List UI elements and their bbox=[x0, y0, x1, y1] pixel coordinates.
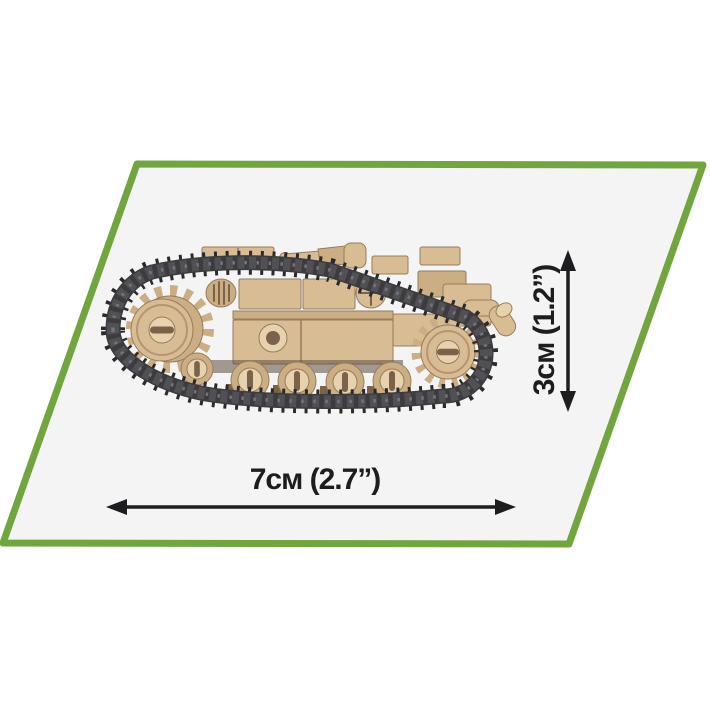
height-dimension-label: 3см (1.2”) bbox=[528, 190, 562, 470]
road-wheel bbox=[181, 353, 213, 385]
dimension-diagram: 7см (2.7”) 3см (1.2”) bbox=[0, 0, 710, 710]
exhaust-grille bbox=[206, 279, 236, 307]
diagram-canvas bbox=[0, 0, 710, 710]
width-dimension-label: 7см (2.7”) bbox=[175, 463, 455, 497]
